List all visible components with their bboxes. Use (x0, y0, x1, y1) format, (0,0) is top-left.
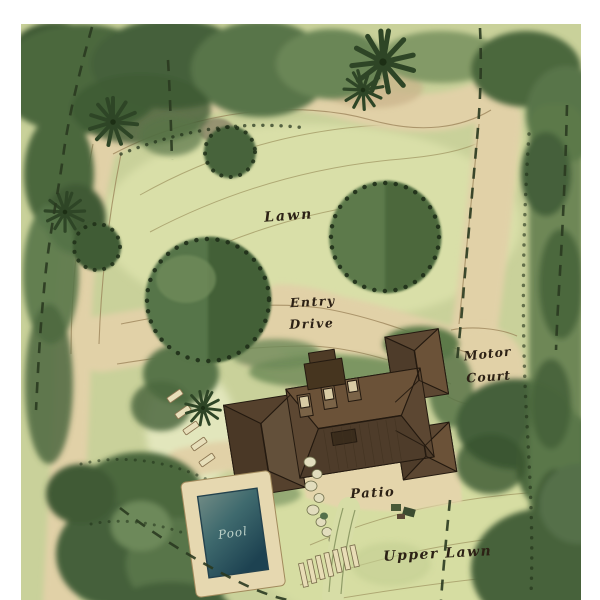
tuft (320, 513, 328, 520)
motor-court-label-line2: Court (466, 367, 512, 385)
entry-drive-label-line2: Drive (288, 315, 334, 332)
site-plan-drawing: Pool (21, 24, 581, 600)
patio-label: Patio (349, 485, 396, 502)
large-tree-left (145, 237, 271, 363)
entry-drive-label-line1: Entry (289, 293, 336, 310)
house-entry-porch (304, 358, 346, 390)
site-plan-svg: Pool (21, 24, 581, 600)
large-tree-right (329, 181, 441, 293)
pool-area: Pool (181, 470, 286, 597)
site-plan-page: Pool (0, 0, 600, 600)
